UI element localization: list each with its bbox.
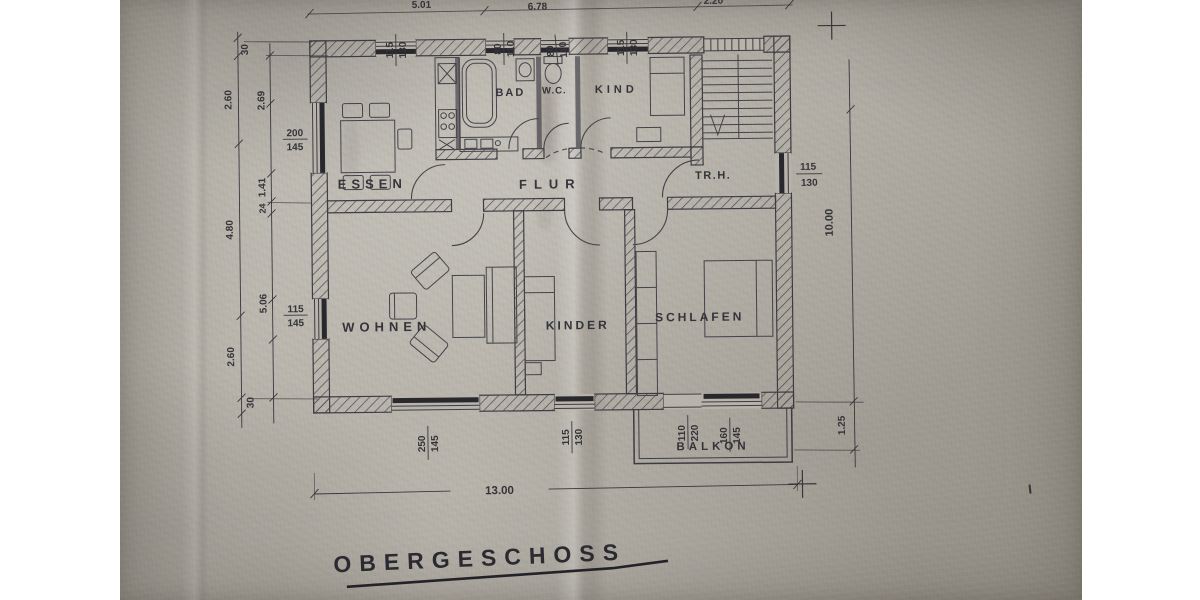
room-label-kind: KIND (595, 84, 638, 96)
window-left-wohnen (312, 299, 328, 339)
dim-value: 110 (558, 41, 571, 59)
dim-left-506: 5.06 (258, 293, 269, 313)
dim-left-480: 4.80 (225, 220, 236, 240)
title-block: OBERGESCHOSS (333, 537, 669, 588)
dim-value: 145 (287, 318, 304, 329)
dim-right-1000: 10.00 (824, 209, 836, 237)
living-set-symbol (389, 250, 517, 363)
dim-value: 145 (287, 142, 304, 153)
dim-left-30-top: 30 (240, 44, 251, 56)
room-label-schlafen: SCHLAFEN (655, 309, 744, 324)
dim-value: 220 (690, 424, 701, 441)
dim-window-right-trh: 115 130 (796, 162, 822, 189)
room-label-flur: FLUR (519, 176, 582, 192)
dim-value: 110 (506, 40, 517, 57)
door-kind (581, 118, 611, 148)
door-schlafen (633, 209, 668, 244)
dim-top-220: 2.20 (704, 0, 724, 7)
window-balcony (702, 392, 762, 409)
dim-value: 130 (629, 39, 640, 56)
window-right-trh (775, 153, 791, 193)
dim-top-678: 6.78 (528, 2, 548, 13)
dim-value: 130 (801, 178, 818, 189)
room-label-wohnen: WOHNEN (342, 319, 431, 335)
dim-value: 115 (385, 42, 396, 59)
balcony-outline (634, 408, 793, 464)
dim-window-left-wohnen: 115 145 (284, 304, 308, 329)
room-label-essen: ESSEN (338, 176, 407, 192)
dim-left-260-bottom: 2.60 (226, 347, 237, 367)
dim-value: 250 (417, 435, 428, 452)
dim-left-269: 2.69 (256, 90, 267, 110)
dim-value: 115 (561, 429, 572, 446)
bathtub-symbol (462, 59, 497, 127)
registration-cross-top (818, 11, 846, 39)
dim-left-24: 24 (257, 203, 267, 213)
dim-bottom-1300: 13.00 (485, 485, 514, 497)
registration-cross-bottom (788, 470, 816, 498)
staircase (702, 54, 773, 139)
room-label-bad: BAD (495, 87, 525, 99)
stray-mark (1029, 485, 1030, 494)
window-bottom-wohnen (392, 395, 480, 412)
door-kinder (565, 210, 600, 245)
dim-window-bottom-kinder: 115 130 (561, 421, 585, 453)
window-left-essen (310, 103, 327, 173)
stair-window-glassband (704, 38, 764, 51)
dim-top-501: 5.01 (412, 0, 432, 11)
dim-window-left-essen: 200 145 (283, 128, 308, 153)
dim-value: 115 (616, 39, 627, 56)
dim-right-125: 1.25 (837, 415, 848, 435)
dim-value: 200 (286, 128, 303, 139)
dim-left-30-bottom: 30 (246, 397, 257, 409)
interior-thin-walls (455, 56, 581, 149)
washbasin-symbol (516, 59, 534, 81)
dim-value: 160 (719, 427, 730, 444)
dim-left-260-top: 2.60 (223, 90, 234, 110)
dim-value: 145 (732, 427, 743, 444)
room-label-kinder: KINDER (546, 318, 610, 333)
door-wohnen (452, 213, 484, 245)
dim-left-141: 1.41 (257, 177, 268, 197)
floorplan-drawing: ESSEN BAD W.C. KIND FLUR TR.H. WOHNEN KI… (0, 0, 1200, 600)
dim-value: 130 (398, 41, 409, 58)
kitchen-counter-symbol (435, 57, 518, 152)
door-essen (411, 165, 445, 199)
dim-value: 80 (545, 45, 557, 58)
kind-bed-symbol (636, 57, 685, 141)
dim-window-bottom-wohnen: 250 145 (417, 426, 441, 460)
dim-value: 80 (493, 43, 504, 55)
window-bottom-kinder (555, 394, 595, 410)
door-bad (509, 119, 539, 149)
room-label-trh: TR.H. (695, 170, 731, 182)
dim-value: 130 (574, 428, 585, 445)
balcony-door-opening (664, 393, 702, 409)
furniture (340, 54, 774, 398)
dim-value: 115 (800, 162, 817, 173)
dim-value: 115 (287, 304, 304, 315)
double-bed-symbol (704, 260, 773, 337)
dim-value: 145 (430, 435, 441, 452)
dim-value: 110 (677, 425, 688, 442)
screenshot: ESSEN BAD W.C. KIND FLUR TR.H. WOHNEN KI… (0, 0, 1200, 600)
